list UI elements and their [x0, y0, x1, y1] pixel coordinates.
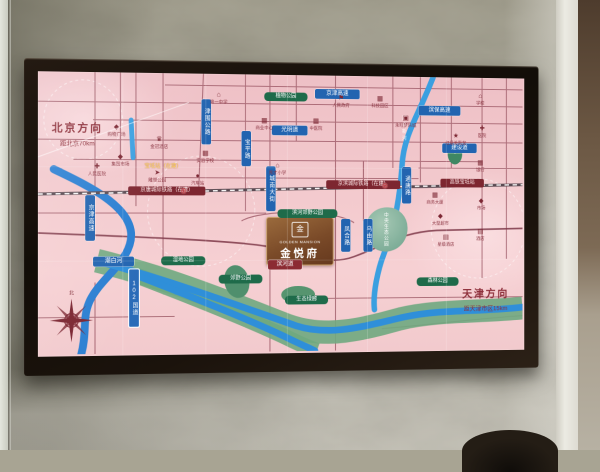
- road-label: 京津高速: [85, 195, 95, 241]
- landmark-label: 育才小学: [263, 169, 292, 175]
- landmark: ✚医院: [467, 125, 498, 139]
- beijing-title: 北京方向: [52, 119, 103, 135]
- project-seal-icon: 金: [292, 222, 309, 238]
- school-icon: ⌂: [465, 93, 496, 100]
- road-label: 宝平路: [242, 131, 251, 166]
- building-icon: ▦: [419, 192, 450, 199]
- building-icon: ▦: [248, 117, 280, 124]
- landmark: ⌂育才小学: [261, 162, 293, 176]
- wall-seam-left: [8, 0, 11, 450]
- road-label: 102国道: [128, 268, 140, 327]
- road-label: 潮白河: [93, 257, 134, 267]
- landmark: ➤雕塑公园: [141, 170, 174, 184]
- road-label: 通唐路: [402, 167, 411, 204]
- building-icon: ▦: [465, 160, 496, 167]
- rail-station-icon: ⊕: [382, 182, 388, 190]
- landmark-label: 商务大厦: [421, 199, 449, 205]
- landmark: ▣永旺梦乐城: [390, 115, 421, 129]
- railway-label: 京滨城际铁路（在建）: [326, 180, 400, 189]
- compass-north-label: 北: [69, 290, 74, 297]
- flag-icon: ⚑: [325, 95, 357, 102]
- landmark: ◆大型超市: [425, 213, 456, 226]
- landmark-label: 商业中心: [249, 124, 279, 131]
- park-label: 滨河郊野公园: [277, 209, 337, 218]
- project-name-cn: 金悦府: [280, 245, 319, 261]
- landmark: ▦中医院: [300, 118, 332, 132]
- road-label: 凤合路: [341, 219, 350, 252]
- landmark: ▦科技园区: [364, 95, 395, 109]
- tianjin-title: 天津方向: [462, 285, 509, 301]
- landmark-label: 人民政府: [327, 102, 356, 109]
- landmark: ▦商业中心: [248, 117, 280, 131]
- wall-pillar-white: [556, 0, 578, 450]
- wall-panel-edge-left: [0, 0, 8, 450]
- landmark-label: 银行: [466, 167, 494, 173]
- landmark: ▦实验学校: [189, 150, 222, 164]
- hotel-icon: ▤: [430, 234, 461, 241]
- direction-tianjin: 天津方向 距天津市区15km: [462, 285, 509, 312]
- landmark: ▦商务大厦: [419, 192, 450, 205]
- building-icon: ▦: [364, 95, 395, 102]
- landmark-label: 酒店: [466, 235, 494, 241]
- map-labels-layer: 北 北京方向 距北京70km 天津方向 距天津市区15km 中央生态公园 潮白新: [38, 71, 524, 357]
- landmark: ▤星级酒店: [430, 234, 461, 247]
- cart-icon: ◆: [466, 198, 497, 205]
- landmark: ◆市场: [466, 198, 497, 211]
- landmark-label: 学校: [466, 100, 494, 106]
- project-plaque: 金 GOLDEN MANSION 金悦府: [266, 217, 334, 266]
- landmark-label: 大型超市: [426, 220, 454, 226]
- landmark-label: 红星美凯龙: [442, 140, 470, 146]
- park-label: 湿地公园: [161, 256, 205, 265]
- road-label: 滨保高速: [419, 106, 461, 116]
- landmark-label: 中医院: [301, 125, 330, 132]
- road-label: 乌由路: [363, 219, 372, 252]
- crown-icon: ♛: [143, 136, 176, 143]
- viewer-head-silhouette: [462, 430, 558, 472]
- landmark-label: 星级酒店: [432, 241, 460, 247]
- hotel-icon: ▤: [465, 228, 496, 235]
- landmark-label: 第一中学: [204, 99, 234, 106]
- wall-trim-brown: [578, 0, 600, 450]
- compass-rose: 北: [48, 296, 95, 344]
- landmark-label: 科技园区: [366, 102, 395, 109]
- project-name-en: GOLDEN MANSION: [280, 239, 321, 244]
- landmark: ●汽车站: [181, 173, 214, 187]
- landmark: ⚑人民政府: [325, 95, 357, 109]
- landmark-label: 汽车站: [183, 180, 213, 186]
- railway-label: 高铁宝坻站: [440, 179, 483, 188]
- park-label: 郊野公园: [219, 275, 263, 284]
- building-icon: ▦: [189, 150, 222, 157]
- bird-icon: ➤: [141, 170, 174, 177]
- landmark: ▤酒店: [465, 228, 496, 241]
- landmark-label: 医院: [468, 132, 496, 138]
- school-icon: ⌂: [202, 91, 234, 98]
- park-label: 生态绿廊: [285, 295, 328, 304]
- car-icon: ●: [181, 173, 214, 180]
- landmark: ♛金冠酒店: [143, 136, 176, 150]
- landmark: ⌂学校: [465, 93, 496, 107]
- school-icon: ⌂: [261, 162, 293, 169]
- cart-icon: ◆: [425, 213, 456, 220]
- photo-of-masterplan-screen: { "map": { "plaque": { "seal": "金", "en"…: [0, 0, 600, 450]
- road-label: 滨河道: [268, 260, 302, 270]
- lake-label: 中央生态公园: [383, 212, 389, 247]
- rail-station-icon: ⊕: [180, 187, 186, 195]
- park-label: 植物公园: [264, 92, 307, 101]
- hospital-icon: ✚: [467, 125, 498, 132]
- compass-star-icon: [48, 296, 95, 344]
- direction-beijing: 北京方向 距北京70km: [52, 119, 103, 147]
- landmark-label: 永旺梦乐城: [391, 122, 420, 128]
- led-screen: 北 北京方向 距北京70km 天津方向 距天津市区15km 中央生态公园 潮白新: [24, 58, 539, 376]
- landmark: ▦银行: [465, 160, 496, 174]
- landmark-label: 人民医院: [82, 171, 113, 178]
- landmark-label: 集贸市场: [105, 161, 135, 168]
- landmark-label: 雕塑公园: [142, 177, 172, 183]
- road-label: 津围公路: [202, 99, 212, 144]
- mall-icon: ▣: [390, 115, 421, 122]
- building-icon: ▦: [300, 118, 332, 125]
- landmark-label: 市场: [467, 205, 495, 211]
- landmark-label: 金冠酒店: [144, 143, 174, 150]
- tianjin-distance: 距天津市区15km: [462, 302, 509, 312]
- landmark: ◆集贸市场: [104, 154, 137, 168]
- cart-icon: ◆: [104, 154, 137, 161]
- railway-label: 京唐城际铁路（在建）: [128, 186, 205, 195]
- park-label: 森林公园: [417, 277, 459, 286]
- landmark-label: 实验学校: [190, 157, 220, 163]
- masterplan-map: 北 北京方向 距北京70km 天津方向 距天津市区15km 中央生态公园 潮白新: [38, 71, 524, 357]
- landmark: ⌂第一中学: [202, 91, 234, 105]
- landmark: ◆购物广场: [100, 124, 133, 138]
